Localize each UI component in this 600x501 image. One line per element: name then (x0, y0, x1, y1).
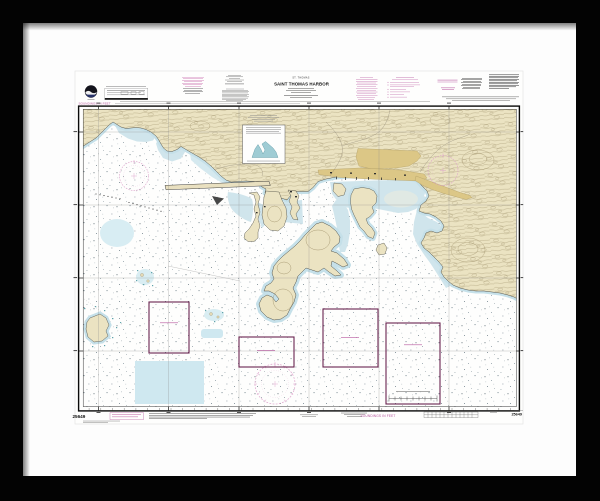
svg-text:25649: 25649 (511, 412, 522, 416)
svg-text:SAINT THOMAS HARBOR: SAINT THOMAS HARBOR (274, 82, 330, 87)
svg-text:25649: 25649 (73, 414, 86, 419)
svg-text:SOUNDINGS IN FEET: SOUNDINGS IN FEET (361, 414, 396, 418)
svg-text:ST. THOMAS: ST. THOMAS (292, 77, 309, 80)
svg-text:SOUNDINGS IN FEET: SOUNDINGS IN FEET (79, 102, 111, 106)
